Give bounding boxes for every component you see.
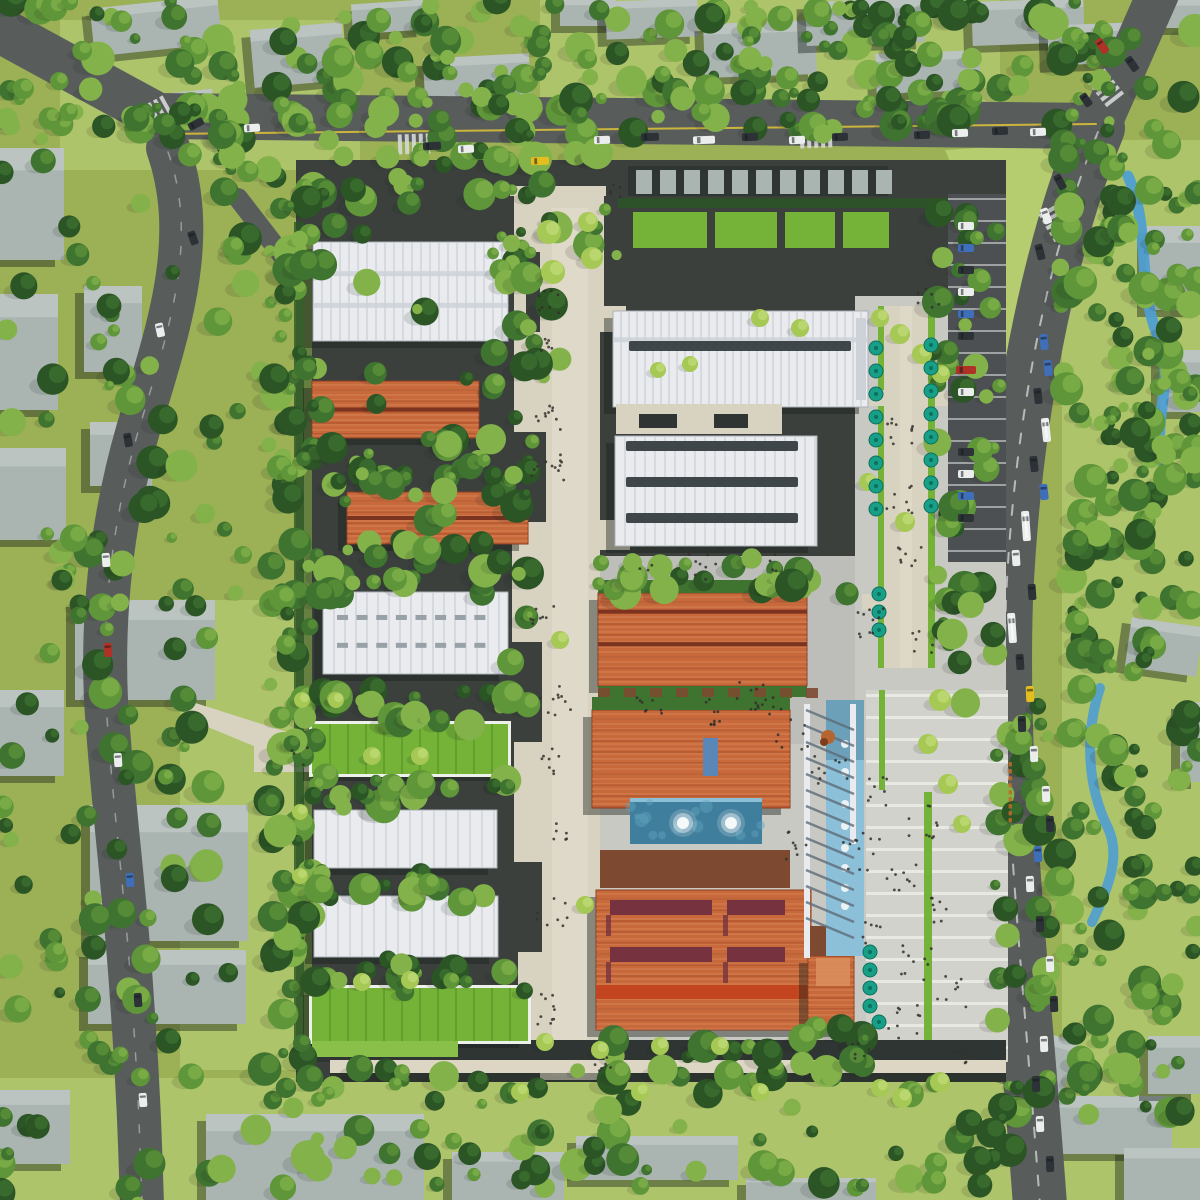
main-hall-C3 bbox=[587, 890, 811, 1037]
car bbox=[1026, 876, 1035, 892]
factory-connector-door-1 bbox=[639, 414, 677, 428]
car bbox=[1015, 654, 1024, 671]
hall-C2 bbox=[583, 697, 790, 815]
car bbox=[1039, 484, 1049, 501]
car bbox=[423, 142, 441, 151]
north-lawn-4 bbox=[843, 212, 889, 248]
car bbox=[958, 448, 974, 456]
car bbox=[594, 136, 610, 145]
car bbox=[1050, 996, 1059, 1012]
car bbox=[1018, 716, 1027, 732]
car bbox=[958, 288, 974, 296]
car bbox=[134, 993, 143, 1008]
plaza-hedge-strip-upper bbox=[879, 690, 885, 790]
car bbox=[1030, 746, 1039, 762]
annex-bright-patch bbox=[816, 958, 850, 986]
car bbox=[952, 129, 968, 138]
car bbox=[1042, 786, 1051, 802]
car bbox=[958, 222, 974, 230]
pool bbox=[625, 799, 764, 844]
car bbox=[139, 1093, 148, 1108]
car bbox=[958, 310, 974, 318]
water-channel-shade bbox=[826, 700, 864, 760]
north-hedge bbox=[618, 198, 952, 208]
car bbox=[104, 643, 113, 658]
car bbox=[958, 266, 974, 274]
car bbox=[1011, 550, 1020, 567]
warehouse-L6 bbox=[305, 810, 497, 875]
car bbox=[789, 136, 805, 145]
north-lawn-1 bbox=[633, 212, 707, 248]
car bbox=[742, 133, 758, 142]
car bbox=[126, 873, 135, 888]
greenroof-L8 bbox=[303, 985, 531, 1057]
car bbox=[958, 492, 974, 500]
car bbox=[531, 157, 549, 166]
car bbox=[1036, 1116, 1045, 1132]
car bbox=[1026, 686, 1035, 702]
car bbox=[832, 133, 848, 142]
factory-connector-door-2 bbox=[714, 414, 748, 428]
plaza-hedge-strip bbox=[924, 792, 932, 1052]
car bbox=[693, 136, 715, 145]
car bbox=[956, 366, 976, 374]
factory-R1-louver bbox=[856, 318, 866, 400]
market-hall-posts bbox=[598, 688, 818, 698]
car bbox=[958, 388, 974, 396]
factory-R2 bbox=[606, 436, 817, 553]
north-lawn-3 bbox=[785, 212, 835, 248]
car bbox=[958, 244, 974, 252]
car bbox=[1046, 956, 1055, 972]
car bbox=[1029, 456, 1039, 473]
car bbox=[1034, 846, 1043, 862]
north-stalls bbox=[636, 170, 892, 194]
car bbox=[458, 145, 474, 154]
deck-brown bbox=[600, 850, 790, 888]
car bbox=[1043, 360, 1053, 377]
car bbox=[1039, 334, 1049, 351]
car bbox=[958, 332, 974, 340]
illegible-watermark bbox=[1009, 762, 1013, 823]
aerial-masterplan-render bbox=[0, 0, 1200, 1200]
north-lawn-2 bbox=[715, 212, 777, 248]
car bbox=[1033, 388, 1043, 405]
car bbox=[1036, 916, 1045, 932]
car bbox=[992, 127, 1008, 136]
masterplan-canvas bbox=[0, 0, 1200, 1200]
car bbox=[244, 123, 261, 132]
car bbox=[958, 470, 974, 478]
factory-R1 bbox=[604, 311, 868, 414]
car bbox=[914, 131, 930, 140]
car bbox=[641, 133, 659, 142]
car bbox=[114, 753, 123, 768]
car bbox=[102, 553, 111, 568]
car bbox=[1027, 584, 1036, 601]
car bbox=[1030, 128, 1046, 137]
car bbox=[1046, 1156, 1055, 1172]
car bbox=[1032, 1076, 1041, 1092]
car bbox=[1046, 816, 1055, 832]
car bbox=[1040, 1036, 1049, 1052]
car bbox=[958, 514, 974, 522]
